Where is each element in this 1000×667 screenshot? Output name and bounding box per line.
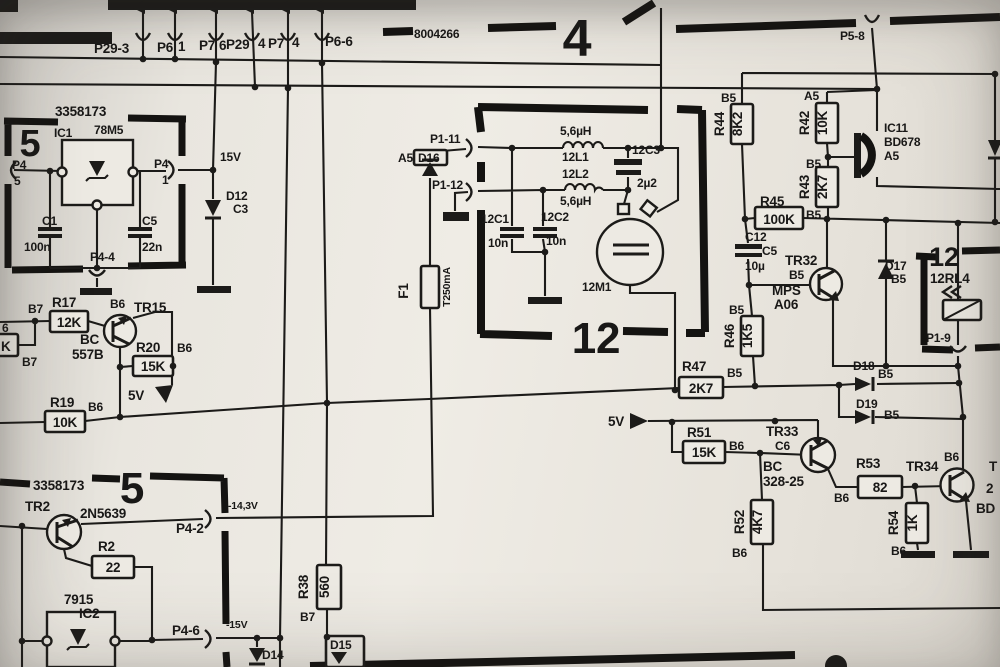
label-r38-value: 560	[317, 576, 332, 598]
label-12c2: 12C2	[541, 210, 569, 224]
label-r42-tag: A5	[804, 89, 819, 103]
label-d15: D15	[330, 638, 352, 652]
label-r20: R20	[136, 340, 160, 355]
label-fragment-t: T	[989, 459, 998, 474]
ground-tr34	[953, 551, 989, 558]
label-d17: D17	[885, 259, 907, 273]
switched-supply-wire	[120, 383, 963, 419]
label-ic2-value: 7915	[64, 592, 94, 607]
label-r52: R52	[732, 510, 747, 534]
p4-1-cup	[168, 161, 174, 179]
schematic-drawing: P29-3 P6 1 P7 6 P29 4 P7 4 P6-6 8004266 …	[0, 0, 1000, 667]
label-r43: R43	[797, 174, 812, 199]
label-d17-tag: B5	[891, 272, 906, 286]
motor-terminal-left	[618, 204, 629, 214]
label-tr15-val1: BC	[80, 332, 100, 347]
ground-p1-12	[443, 212, 469, 221]
inductor-12l2	[565, 184, 603, 190]
label-partial-value: K	[1, 339, 11, 354]
p1-11-cup	[466, 139, 472, 157]
ground-p4-4	[80, 288, 112, 295]
label-part-number: 8004266	[414, 27, 460, 41]
label-r54-value: 1K	[905, 514, 920, 531]
label-c5: C5	[142, 214, 157, 228]
label-r45-tag: B5	[806, 208, 821, 222]
label-p7b-pin: 4	[292, 35, 300, 50]
label-p29-3: P29-3	[94, 41, 130, 56]
label-r54-tag: B6	[891, 544, 906, 558]
label-d18-tag: B5	[878, 367, 893, 381]
label-p29b-pin: 4	[258, 36, 266, 51]
label-ic1-value: 78M5	[94, 123, 124, 137]
label-r54: R54	[886, 510, 901, 535]
label-tr33-grp: C6	[775, 439, 790, 453]
label-d16: D16	[418, 151, 440, 165]
label-r42-value: 10K	[815, 110, 830, 135]
label-tr33-val2: 328-25	[763, 474, 805, 489]
bottom-block-border	[310, 655, 795, 666]
label-tr32-grp: B5	[789, 268, 804, 282]
label-l1: 12L1	[562, 150, 589, 164]
p4-2-cup	[205, 510, 211, 528]
tr34-body	[941, 469, 974, 502]
label-tr2: TR2	[25, 499, 50, 514]
ic1-pin-left	[58, 168, 67, 177]
label-ic11: IC11	[884, 121, 908, 135]
label-r19-value: 10K	[53, 415, 78, 430]
label-r19-tag: B6	[88, 400, 103, 414]
cap-12c3	[614, 159, 642, 165]
cap-12c2	[533, 227, 557, 231]
d12-diode	[205, 200, 221, 216]
label-r19: R19	[50, 395, 74, 410]
label-r46-tag: B5	[729, 303, 744, 317]
label-r20-value: 15K	[141, 359, 166, 374]
junction-dots	[19, 56, 999, 645]
label-r47-tag: B5	[727, 366, 742, 380]
label-tr33-val1: BC	[763, 459, 783, 474]
label-12c3-value: 2µ2	[637, 176, 657, 190]
label-r46-value: 1K5	[740, 323, 755, 348]
label-p1-12: P1-12	[432, 178, 464, 192]
label-p6-6: P6-6	[325, 34, 353, 49]
label-tr34: TR34	[906, 459, 939, 474]
label-r44: R44	[712, 111, 727, 136]
label-p1-11: P1-11	[430, 132, 461, 146]
label-r38: R38	[296, 574, 311, 599]
label-tr2-value: 2N5639	[80, 506, 126, 521]
label-r43-value: 2K7	[815, 175, 830, 199]
label-r17-tag: B7	[28, 302, 43, 316]
label-c12-value: 10µ	[745, 259, 765, 273]
label-f1-value: T250mA	[441, 267, 453, 307]
label-l2-value: 5,6µH	[560, 194, 591, 208]
label-relay: 12RL4	[930, 271, 970, 286]
label-tr32: TR32	[785, 253, 817, 268]
label-r51-value: 15K	[692, 445, 717, 460]
label-fragment-bd: BD	[976, 501, 996, 516]
label-r2-value: 22	[106, 560, 121, 575]
cap-c12-c5	[735, 244, 762, 249]
label-fragment-2: 2	[986, 481, 993, 496]
ground-d12	[197, 286, 231, 293]
label-r47: R47	[682, 359, 706, 374]
label-p4-1-pin: 1	[162, 173, 169, 187]
label-p29b: P29	[226, 37, 249, 52]
label-tr15-val2: 557B	[72, 347, 104, 362]
label-r17-value: 12K	[57, 315, 82, 330]
label-module-b: 3358173	[33, 478, 85, 493]
partial-block-digit	[825, 655, 847, 667]
label-r53-tag: B6	[834, 491, 849, 505]
label-p7b: P7	[268, 36, 284, 51]
label-c5-value: 22n	[142, 240, 162, 254]
label-r20-tag: B6	[177, 341, 192, 355]
label-r51-tag: B6	[729, 439, 744, 453]
label-f1: F1	[396, 283, 411, 299]
label-neg15v: -15V	[226, 619, 248, 631]
ic1-pin-right	[129, 168, 138, 177]
label-p6: P6	[157, 40, 174, 55]
label-partial-tag: B7	[22, 355, 37, 369]
label-12c1: 12C1	[481, 212, 509, 226]
label-12c1-value: 10n	[488, 236, 508, 250]
label-p4-5: P4	[12, 158, 27, 172]
label-p7a: P7	[199, 38, 215, 53]
p4-6-cup	[205, 630, 211, 648]
label-p1-9: P1-9	[926, 331, 951, 345]
label-d19-tag: B5	[884, 408, 899, 422]
label-r17: R17	[52, 295, 76, 310]
ic1-pin-bottom	[93, 201, 102, 210]
ic2-pin-right	[111, 637, 120, 646]
p5-8-cup	[865, 15, 879, 22]
edge-diode	[988, 140, 1000, 156]
label-5v-left: 5V	[128, 388, 144, 403]
motor-terminal-right	[641, 200, 657, 216]
inductor-12l1	[563, 142, 603, 148]
label-l1-value: 5,6µH	[560, 124, 591, 138]
label-12c2-value: 10n	[546, 234, 566, 248]
label-r45: R45	[760, 194, 785, 209]
label-p4-2: P4-2	[176, 521, 204, 536]
label-r52-value: 4K7	[750, 510, 765, 534]
label-ic11-value: BD678	[884, 135, 921, 149]
motor-body	[597, 219, 663, 285]
label-r42: R42	[797, 111, 812, 135]
label-p4-5-pin: 5	[14, 174, 21, 188]
5v-arrow-right	[630, 413, 648, 429]
label-r53: R53	[856, 456, 881, 471]
label-d16-tag: A5	[398, 151, 413, 165]
label-d18: D18	[853, 359, 875, 373]
f1-fuse-body	[421, 266, 439, 308]
label-tr15: TR15	[134, 300, 167, 315]
schematic-photo: P29-3 P6 1 P7 6 P29 4 P7 4 P6-6 8004266 …	[0, 0, 1000, 667]
5v-arrow-tr15	[155, 385, 173, 403]
label-5v-right: 5V	[608, 414, 624, 429]
label-15v: 15V	[220, 150, 241, 164]
label-p4-1: P4	[154, 157, 169, 171]
label-tr33: TR33	[766, 424, 799, 439]
label-neg14v: -14,3V	[228, 500, 258, 512]
label-d12: D12	[226, 189, 248, 203]
label-r43-tag: B5	[806, 157, 821, 171]
label-12c3: 12C3	[632, 143, 660, 157]
label-r45-value: 100K	[763, 212, 795, 227]
label-block12: 12	[572, 314, 621, 363]
label-partial-ref: 6	[2, 321, 9, 335]
label-relay-block: 12	[929, 242, 959, 272]
label-r47-value: 2K7	[689, 381, 713, 396]
cap-12c1	[500, 227, 524, 231]
label-block4: 4	[563, 10, 592, 68]
label-ic1: IC1	[54, 126, 73, 140]
label-tr15-grp: B6	[110, 297, 125, 311]
ground-r54	[901, 551, 935, 558]
label-p6-pin: 1	[178, 39, 186, 54]
label-c12: C12	[745, 230, 767, 244]
ground-block12	[528, 297, 562, 304]
label-c12-alt: C5	[762, 244, 777, 258]
label-c1: C1	[42, 214, 57, 228]
label-ic2: IC2	[79, 606, 99, 621]
label-ic11-grp: A5	[884, 149, 899, 163]
label-tr34-grp: B6	[944, 450, 959, 464]
ic2-pin-left	[43, 637, 52, 646]
label-tr32-val1: MPS	[772, 283, 801, 298]
label-l2: 12L2	[562, 167, 589, 181]
label-r2: R2	[98, 539, 115, 554]
label-d14: D14	[262, 648, 284, 662]
label-r51: R51	[687, 425, 712, 440]
label-r44-tag: B5	[721, 91, 736, 105]
label-motor: 12M1	[582, 280, 612, 294]
label-d12-tag: C3	[233, 202, 248, 216]
label-module-a: 3358173	[55, 104, 107, 119]
label-r46: R46	[722, 323, 737, 348]
label-tr32-val2: A06	[774, 297, 799, 312]
label-r53-value: 82	[873, 480, 888, 495]
label-p4-4: P4-4	[90, 250, 115, 264]
label-p4-6: P4-6	[172, 623, 200, 638]
label-p5-8: P5-8	[840, 29, 865, 43]
label-r52-tag: B6	[732, 546, 747, 560]
label-r38-tag: B7	[300, 610, 315, 624]
block4-border	[383, 3, 1000, 32]
label-c1-value: 100n	[24, 240, 51, 254]
d18-diode	[855, 377, 871, 391]
label-d19: D19	[856, 397, 878, 411]
d19-diode	[855, 410, 871, 424]
label-r44-value: 8K2	[730, 112, 745, 136]
